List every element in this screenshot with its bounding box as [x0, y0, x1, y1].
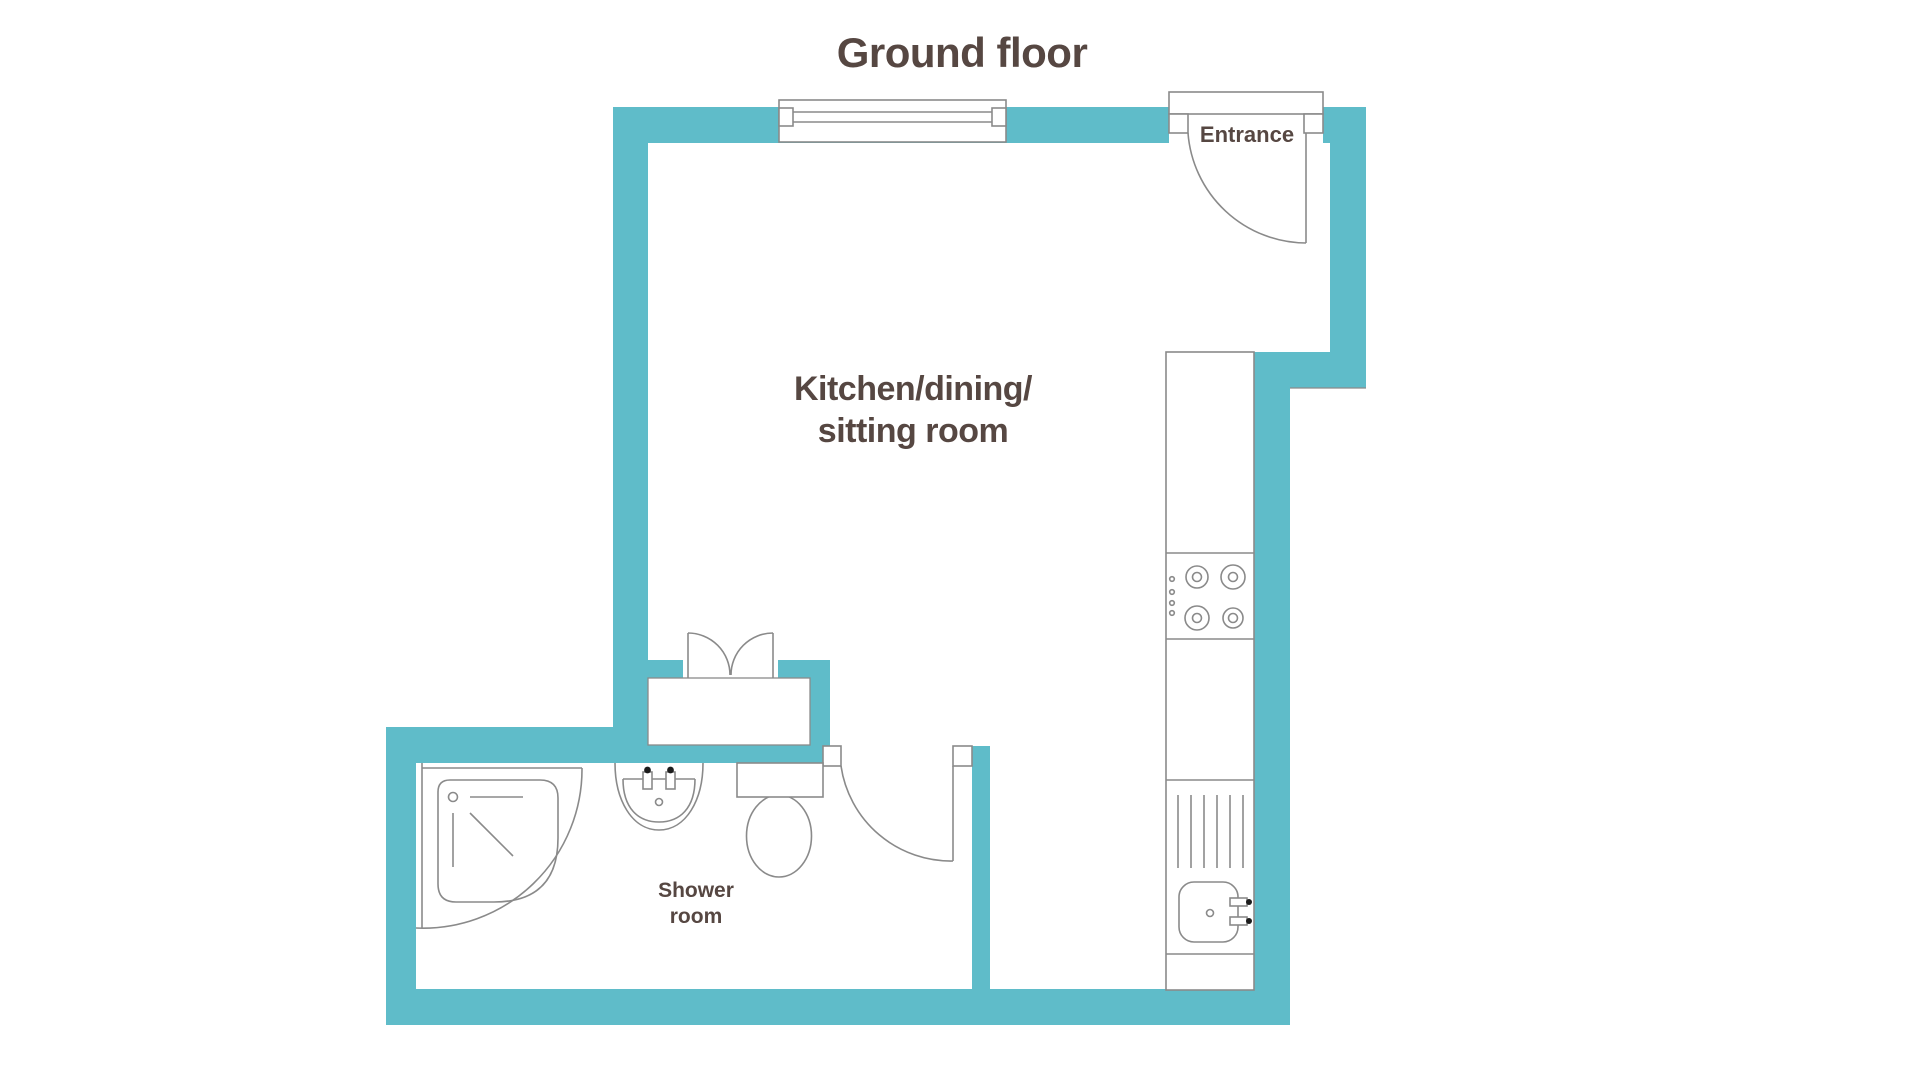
- entrance-door-swing: [1188, 133, 1306, 243]
- room-label-entrance: Entrance: [1200, 122, 1294, 147]
- washbasin: [615, 763, 703, 830]
- basin-tap: [666, 772, 675, 789]
- room-label-main-line2: sitting room: [818, 412, 1008, 450]
- window-mullion: [992, 108, 1006, 126]
- sink-tap: [1230, 917, 1247, 925]
- entrance-door: [1169, 92, 1323, 243]
- wall-bottom: [386, 989, 1290, 1025]
- shower-door: [823, 746, 972, 861]
- shower-door-jamb-right: [953, 746, 972, 766]
- floor-title: Ground floor: [837, 29, 1088, 76]
- wall-main-left: [613, 107, 648, 763]
- wall-lobby-stub-left: [648, 660, 683, 678]
- window-frame: [779, 100, 1006, 142]
- kitchen-counter: [1166, 352, 1254, 990]
- shower-door-jamb-left: [823, 746, 841, 766]
- corner-shower: [416, 763, 582, 928]
- toilet-bowl: [747, 795, 812, 877]
- entrance-jamb-right: [1304, 114, 1323, 133]
- floorplan-drawing: Ground floor Kitchen/dining/ sitting roo…: [0, 0, 1920, 1080]
- wall-right-upper: [1330, 107, 1366, 388]
- room-label-shower-line1: Shower: [658, 879, 734, 902]
- basin-drain: [656, 799, 663, 806]
- window: [779, 100, 1006, 142]
- shower-tray-line: [470, 813, 513, 856]
- wall-showerroom-top: [386, 727, 648, 763]
- sink-tap-handle: [1246, 918, 1252, 924]
- wall-right-lower: [1254, 352, 1290, 1025]
- double-door-swing-left: [688, 633, 730, 675]
- window-mullion: [779, 108, 793, 126]
- double-doors: [688, 633, 773, 678]
- basin-bowl: [623, 779, 695, 822]
- double-door-swing-right: [731, 633, 773, 675]
- entrance-jamb-left: [1169, 114, 1188, 133]
- sink-tap: [1230, 898, 1247, 906]
- shower-door-swing: [841, 766, 953, 861]
- wall-left-outer: [386, 727, 416, 1025]
- floorplan-page: Ground floor Kitchen/dining/ sitting roo…: [0, 0, 1920, 1080]
- room-label-main-line1: Kitchen/dining/: [794, 370, 1033, 408]
- sink-tap-handle: [1246, 899, 1252, 905]
- basin-tap-handle: [644, 767, 651, 774]
- toilet: [737, 763, 823, 877]
- basin-tap: [643, 772, 652, 789]
- basin-outer: [615, 763, 703, 830]
- wall-nook: [972, 746, 990, 989]
- toilet-cistern: [737, 763, 823, 797]
- shower-drain: [449, 793, 458, 802]
- lobby-floor: [648, 678, 810, 745]
- room-label-shower-line2: room: [670, 905, 723, 928]
- wall-lobby-bottom: [648, 745, 830, 763]
- entrance-threshold: [1169, 92, 1323, 114]
- basin-tap-handle: [667, 767, 674, 774]
